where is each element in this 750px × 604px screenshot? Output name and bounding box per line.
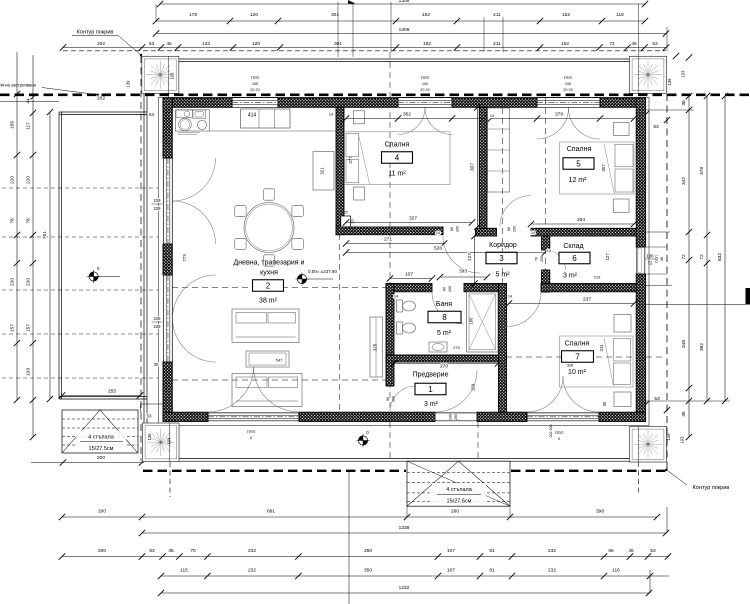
- svg-text:3 m²: 3 m²: [424, 401, 439, 408]
- svg-text:307: 307: [470, 163, 476, 171]
- svg-text:229: 229: [154, 324, 162, 329]
- svg-text:12 m²: 12 m²: [569, 177, 588, 184]
- svg-text:81: 81: [489, 548, 495, 554]
- svg-text:547: 547: [276, 358, 283, 363]
- svg-text:200: 200: [456, 226, 460, 232]
- svg-text:72: 72: [699, 254, 705, 260]
- svg-text:190: 190: [449, 414, 453, 420]
- svg-text:157: 157: [26, 324, 32, 332]
- svg-text:70: 70: [190, 548, 196, 554]
- svg-text:180: 180: [646, 254, 654, 259]
- svg-text:211: 211: [493, 41, 501, 47]
- svg-text:Баня: Баня: [436, 301, 452, 308]
- svg-text:53: 53: [653, 124, 659, 130]
- svg-text:325: 325: [373, 343, 378, 351]
- svg-text:1338: 1338: [399, 525, 410, 531]
- svg-text:526: 526: [434, 246, 442, 252]
- svg-text:118: 118: [616, 12, 624, 18]
- svg-text:166: 166: [469, 317, 474, 325]
- svg-text:200: 200: [97, 455, 105, 461]
- svg-text:1306: 1306: [399, 27, 410, 33]
- svg-text:53: 53: [149, 548, 155, 554]
- svg-text:393: 393: [459, 269, 467, 275]
- svg-text:15/27.5см: 15/27.5см: [447, 499, 472, 505]
- svg-text:72: 72: [648, 261, 653, 266]
- svg-text:46: 46: [628, 548, 634, 554]
- svg-text:80: 80: [443, 287, 447, 291]
- svg-text:232: 232: [548, 548, 556, 554]
- svg-text:45: 45: [168, 548, 174, 554]
- svg-text:4: 4: [395, 154, 400, 163]
- svg-text:14: 14: [531, 231, 535, 235]
- svg-text:ППП: ППП: [655, 255, 659, 263]
- svg-text:80: 80: [450, 227, 454, 231]
- svg-text:107: 107: [405, 272, 413, 278]
- svg-text:761: 761: [42, 231, 48, 239]
- svg-text:270: 270: [440, 364, 448, 370]
- svg-text:232: 232: [548, 568, 556, 574]
- svg-text:152: 152: [422, 12, 430, 18]
- svg-text:270: 270: [453, 345, 460, 350]
- svg-text:14: 14: [394, 295, 398, 299]
- svg-text:14: 14: [547, 249, 551, 253]
- svg-text:127: 127: [467, 253, 473, 261]
- svg-text:36: 36: [681, 100, 687, 106]
- svg-text:229: 229: [154, 316, 162, 321]
- svg-text:45: 45: [166, 41, 172, 47]
- svg-text:1: 1: [428, 385, 433, 394]
- svg-text:5: 5: [576, 160, 581, 169]
- svg-text:20 20: 20 20: [250, 88, 260, 92]
- svg-text:832: 832: [717, 253, 723, 261]
- svg-text:1306: 1306: [399, 0, 410, 4]
- svg-text:Контур покрив: Контур покрив: [693, 485, 730, 491]
- svg-text:38: 38: [660, 257, 664, 261]
- svg-text:8: 8: [442, 313, 447, 322]
- svg-text:11 m²: 11 m²: [388, 171, 406, 178]
- svg-text:342: 342: [681, 177, 687, 185]
- svg-text:20 20: 20 20: [420, 88, 430, 92]
- svg-text:20: 20: [351, 219, 355, 223]
- svg-text:6: 6: [572, 254, 577, 263]
- svg-text:107: 107: [447, 568, 455, 574]
- svg-text:0.00= ±237.90: 0.00= ±237.90: [308, 269, 337, 274]
- svg-text:10 m²: 10 m²: [568, 369, 587, 376]
- svg-text:117: 117: [26, 122, 32, 130]
- svg-text:103: 103: [170, 72, 175, 80]
- svg-text:44: 44: [26, 98, 32, 104]
- svg-text:0: 0: [250, 436, 252, 440]
- svg-text:90: 90: [386, 397, 390, 401]
- svg-text:Дневна, трапезария и: Дневна, трапезария и: [234, 260, 305, 267]
- svg-text:116: 116: [612, 568, 620, 574]
- svg-text:773: 773: [182, 254, 187, 262]
- svg-text:220: 220: [10, 176, 16, 184]
- svg-text:Предверие: Предверие: [413, 372, 449, 379]
- svg-text:327: 327: [409, 216, 417, 222]
- svg-text:Спалня: Спалня: [567, 146, 592, 153]
- svg-text:152: 152: [561, 41, 569, 47]
- svg-text:103: 103: [680, 436, 685, 444]
- svg-text:129: 129: [471, 383, 476, 391]
- svg-text:ППП: ППП: [564, 75, 573, 80]
- svg-text:115: 115: [180, 568, 188, 574]
- svg-text:53: 53: [149, 112, 154, 117]
- svg-text:103: 103: [26, 368, 32, 376]
- svg-text:72: 72: [681, 254, 687, 260]
- svg-text:220: 220: [10, 278, 16, 286]
- svg-text:Спалня: Спалня: [385, 142, 410, 149]
- svg-text:2: 2: [266, 282, 271, 291]
- svg-text:66: 66: [608, 548, 614, 554]
- svg-text:25: 25: [343, 211, 347, 215]
- svg-text:348: 348: [681, 340, 687, 348]
- svg-text:ППП: ППП: [247, 429, 256, 434]
- svg-text:15/27.5см: 15/27.5см: [89, 446, 114, 452]
- svg-text:350: 350: [364, 568, 372, 574]
- svg-text:200: 200: [98, 548, 106, 554]
- svg-text:104: 104: [167, 437, 172, 445]
- svg-text:30: 30: [154, 362, 159, 367]
- svg-text:202: 202: [97, 95, 105, 101]
- svg-text:352: 352: [403, 112, 411, 118]
- svg-text:229: 229: [154, 198, 162, 203]
- svg-text:260: 260: [448, 286, 452, 292]
- svg-text:178: 178: [189, 12, 197, 18]
- svg-text:220: 220: [26, 278, 32, 286]
- svg-text:Коридор: Коридор: [489, 242, 517, 249]
- svg-text:7: 7: [575, 353, 580, 362]
- svg-text:260: 260: [454, 414, 458, 420]
- svg-text:4 стъпала: 4 стъпала: [88, 435, 115, 441]
- svg-text:100: 100: [565, 82, 571, 86]
- svg-text:103: 103: [681, 70, 686, 78]
- svg-text:Спалня: Спалня: [565, 341, 590, 348]
- svg-text:3 m²: 3 m²: [563, 273, 578, 280]
- svg-text:311: 311: [599, 344, 604, 352]
- svg-text:53: 53: [650, 548, 656, 554]
- svg-text:0: 0: [558, 437, 560, 441]
- svg-text:107: 107: [447, 548, 455, 554]
- svg-text:200: 200: [98, 509, 106, 515]
- svg-text:156: 156: [10, 121, 16, 129]
- svg-text:139: 139: [667, 78, 672, 86]
- svg-text:139: 139: [666, 433, 671, 441]
- svg-text:157: 157: [10, 324, 16, 332]
- svg-text:100: 100: [252, 82, 258, 86]
- svg-text:202 208: 202 208: [549, 425, 553, 438]
- svg-text:53: 53: [149, 41, 155, 47]
- svg-text:350: 350: [364, 548, 372, 554]
- svg-text:398: 398: [596, 509, 604, 515]
- svg-text:307: 307: [601, 164, 606, 172]
- svg-text:5 m²: 5 m²: [496, 272, 511, 279]
- svg-text:232: 232: [248, 568, 256, 574]
- svg-text:80: 80: [507, 227, 511, 231]
- svg-text:70: 70: [535, 257, 539, 261]
- svg-text:264: 264: [577, 217, 585, 223]
- svg-text:81: 81: [489, 568, 495, 574]
- svg-text:237: 237: [583, 297, 591, 303]
- svg-text:202: 202: [97, 41, 105, 47]
- svg-text:321: 321: [320, 167, 325, 175]
- svg-text:ППП: ППП: [421, 75, 430, 80]
- svg-text:681: 681: [267, 509, 275, 515]
- svg-text:кухня: кухня: [260, 270, 278, 277]
- svg-text:14: 14: [490, 114, 494, 118]
- svg-text:120: 120: [250, 12, 258, 18]
- svg-text:53: 53: [652, 41, 658, 47]
- svg-text:382: 382: [699, 343, 705, 351]
- svg-text:3: 3: [499, 254, 504, 263]
- svg-text:139: 139: [147, 433, 152, 441]
- svg-text:232: 232: [248, 548, 256, 554]
- svg-text:ППП: ППП: [251, 75, 260, 80]
- svg-text:30: 30: [602, 401, 607, 406]
- svg-text:36: 36: [681, 411, 687, 417]
- svg-text:277: 277: [348, 156, 353, 164]
- svg-text:152: 152: [423, 41, 431, 47]
- svg-text:20 20: 20 20: [563, 88, 573, 92]
- svg-text:328: 328: [567, 364, 573, 368]
- svg-text:133: 133: [202, 41, 210, 47]
- svg-text:260: 260: [451, 509, 459, 515]
- svg-text:200: 200: [513, 226, 517, 232]
- svg-text:14: 14: [329, 113, 333, 117]
- svg-text:на линия на застрояване: на линия на застрояване: [0, 83, 37, 88]
- svg-text:78: 78: [26, 218, 32, 224]
- svg-text:127: 127: [605, 253, 610, 261]
- svg-text:46: 46: [631, 41, 637, 47]
- svg-text:379: 379: [555, 112, 563, 118]
- svg-text:120: 120: [252, 41, 260, 47]
- svg-text:1232: 1232: [399, 585, 410, 591]
- svg-text:38 m²: 38 m²: [259, 298, 278, 305]
- svg-text:152: 152: [562, 12, 570, 18]
- svg-text:220: 220: [26, 176, 32, 184]
- svg-text:219: 219: [594, 275, 601, 280]
- svg-text:200: 200: [392, 396, 396, 402]
- svg-text:5 m²: 5 m²: [437, 330, 452, 337]
- svg-text:255: 255: [108, 389, 116, 395]
- svg-text:211: 211: [493, 12, 501, 18]
- svg-text:378: 378: [699, 167, 705, 175]
- svg-text:Контур покрив: Контур покрив: [77, 30, 114, 36]
- svg-text:53: 53: [147, 414, 152, 419]
- svg-text:100: 100: [422, 82, 428, 86]
- svg-text:271: 271: [384, 237, 392, 243]
- svg-text:72: 72: [609, 41, 615, 47]
- svg-text:414: 414: [248, 113, 257, 119]
- svg-text:14: 14: [508, 295, 512, 299]
- svg-text:14: 14: [436, 231, 440, 235]
- svg-text:229: 229: [154, 206, 162, 211]
- svg-text:139: 139: [126, 80, 131, 88]
- svg-text:200: 200: [540, 256, 544, 262]
- svg-text:ППП: ППП: [555, 430, 564, 435]
- svg-text:Склад: Склад: [563, 243, 583, 250]
- svg-text:78: 78: [10, 218, 16, 224]
- svg-text:4 стъпала: 4 стъпала: [446, 487, 473, 493]
